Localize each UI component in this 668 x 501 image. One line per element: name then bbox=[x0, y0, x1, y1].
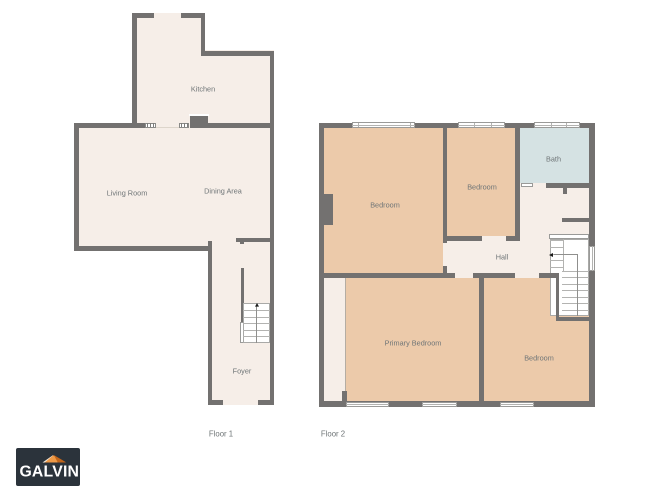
svg-text:GALVIN: GALVIN bbox=[19, 464, 79, 481]
